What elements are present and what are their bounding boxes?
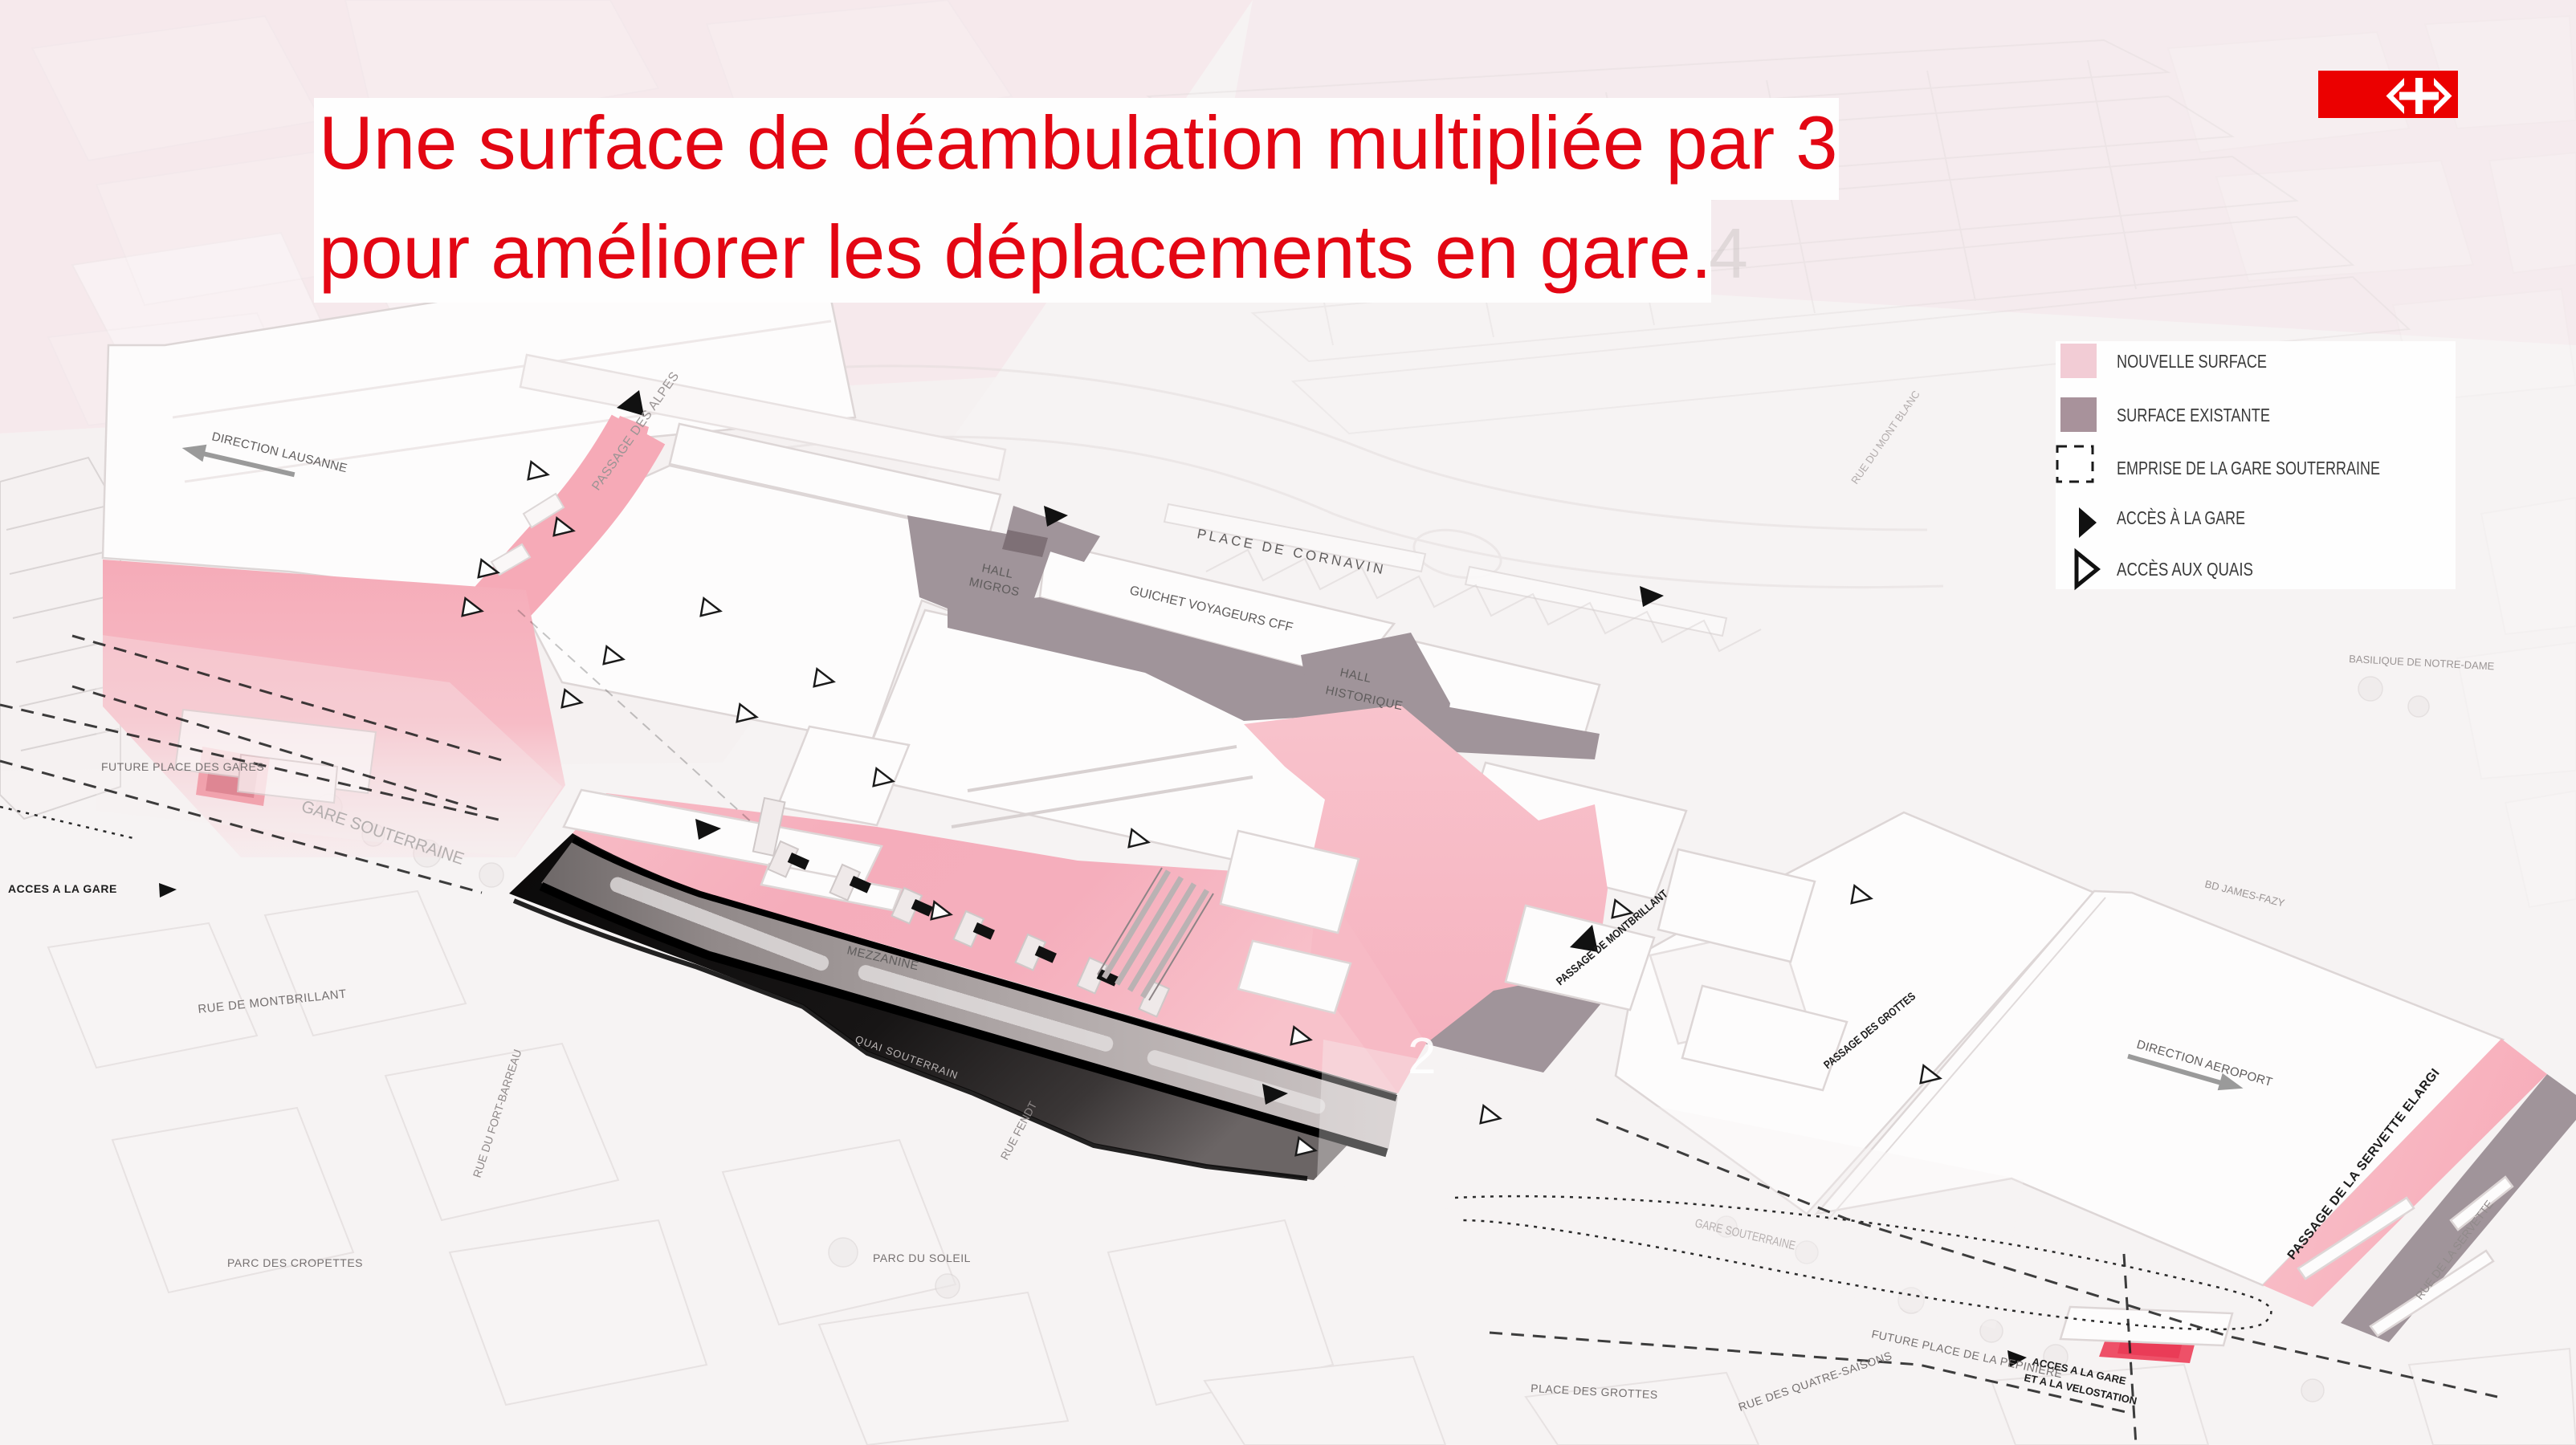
svg-text:FUTURE PLACE DES GARES: FUTURE PLACE DES GARES — [101, 760, 264, 773]
svg-text:ACCES A LA GARE: ACCES A LA GARE — [8, 882, 117, 895]
svg-text:pour améliorer les déplacement: pour améliorer les déplacements en gare. — [319, 210, 1712, 294]
svg-text:PARC DU SOLEIL: PARC DU SOLEIL — [873, 1252, 971, 1264]
svg-text:2: 2 — [1408, 1027, 1437, 1085]
svg-text:SURFACE EXISTANTE: SURFACE EXISTANTE — [2117, 405, 2270, 425]
svg-text:NOUVELLE SURFACE: NOUVELLE SURFACE — [2117, 351, 2267, 372]
svg-text:ACCÈS À LA GARE: ACCÈS À LA GARE — [2117, 507, 2245, 528]
svg-text:Une surface de déambulation mu: Une surface de déambulation multipliée p… — [319, 100, 1838, 185]
svg-text:PARC DES CROPETTES: PARC DES CROPETTES — [227, 1256, 363, 1269]
svg-text:EMPRISE DE LA GARE SOUTERRAINE: EMPRISE DE LA GARE SOUTERRAINE — [2117, 458, 2380, 478]
svg-text:ACCÈS AUX QUAIS: ACCÈS AUX QUAIS — [2117, 559, 2253, 580]
svg-text:4: 4 — [1709, 214, 1748, 293]
